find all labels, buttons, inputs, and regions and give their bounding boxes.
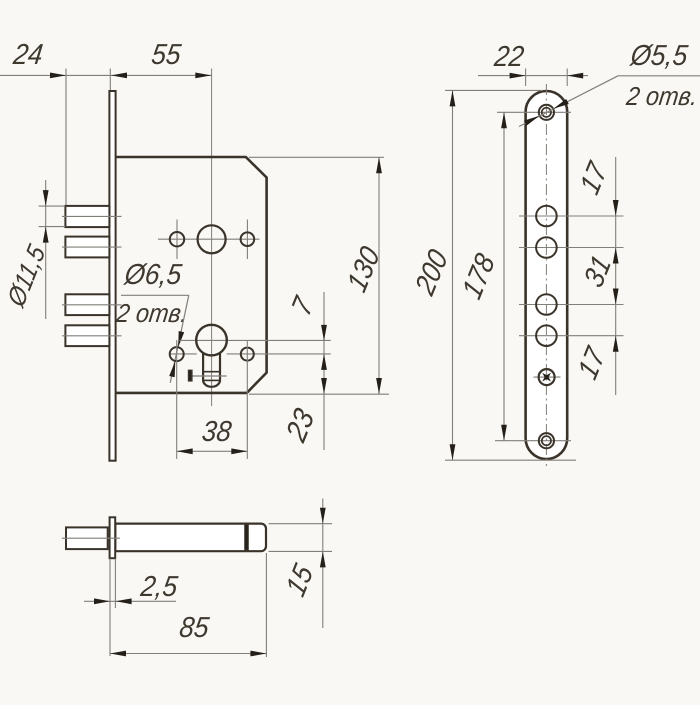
svg-text:24: 24 (11, 38, 45, 70)
svg-text:2,5: 2,5 (138, 570, 180, 602)
svg-text:2 отв.: 2 отв. (114, 300, 189, 328)
svg-text:Ø5,5: Ø5,5 (628, 39, 690, 71)
svg-text:22: 22 (492, 40, 526, 72)
svg-text:38: 38 (200, 415, 234, 447)
svg-text:55: 55 (150, 38, 184, 70)
svg-text:Ø6,5: Ø6,5 (122, 258, 184, 290)
svg-text:2 отв.: 2 отв. (624, 83, 699, 111)
svg-text:85: 85 (178, 611, 212, 643)
